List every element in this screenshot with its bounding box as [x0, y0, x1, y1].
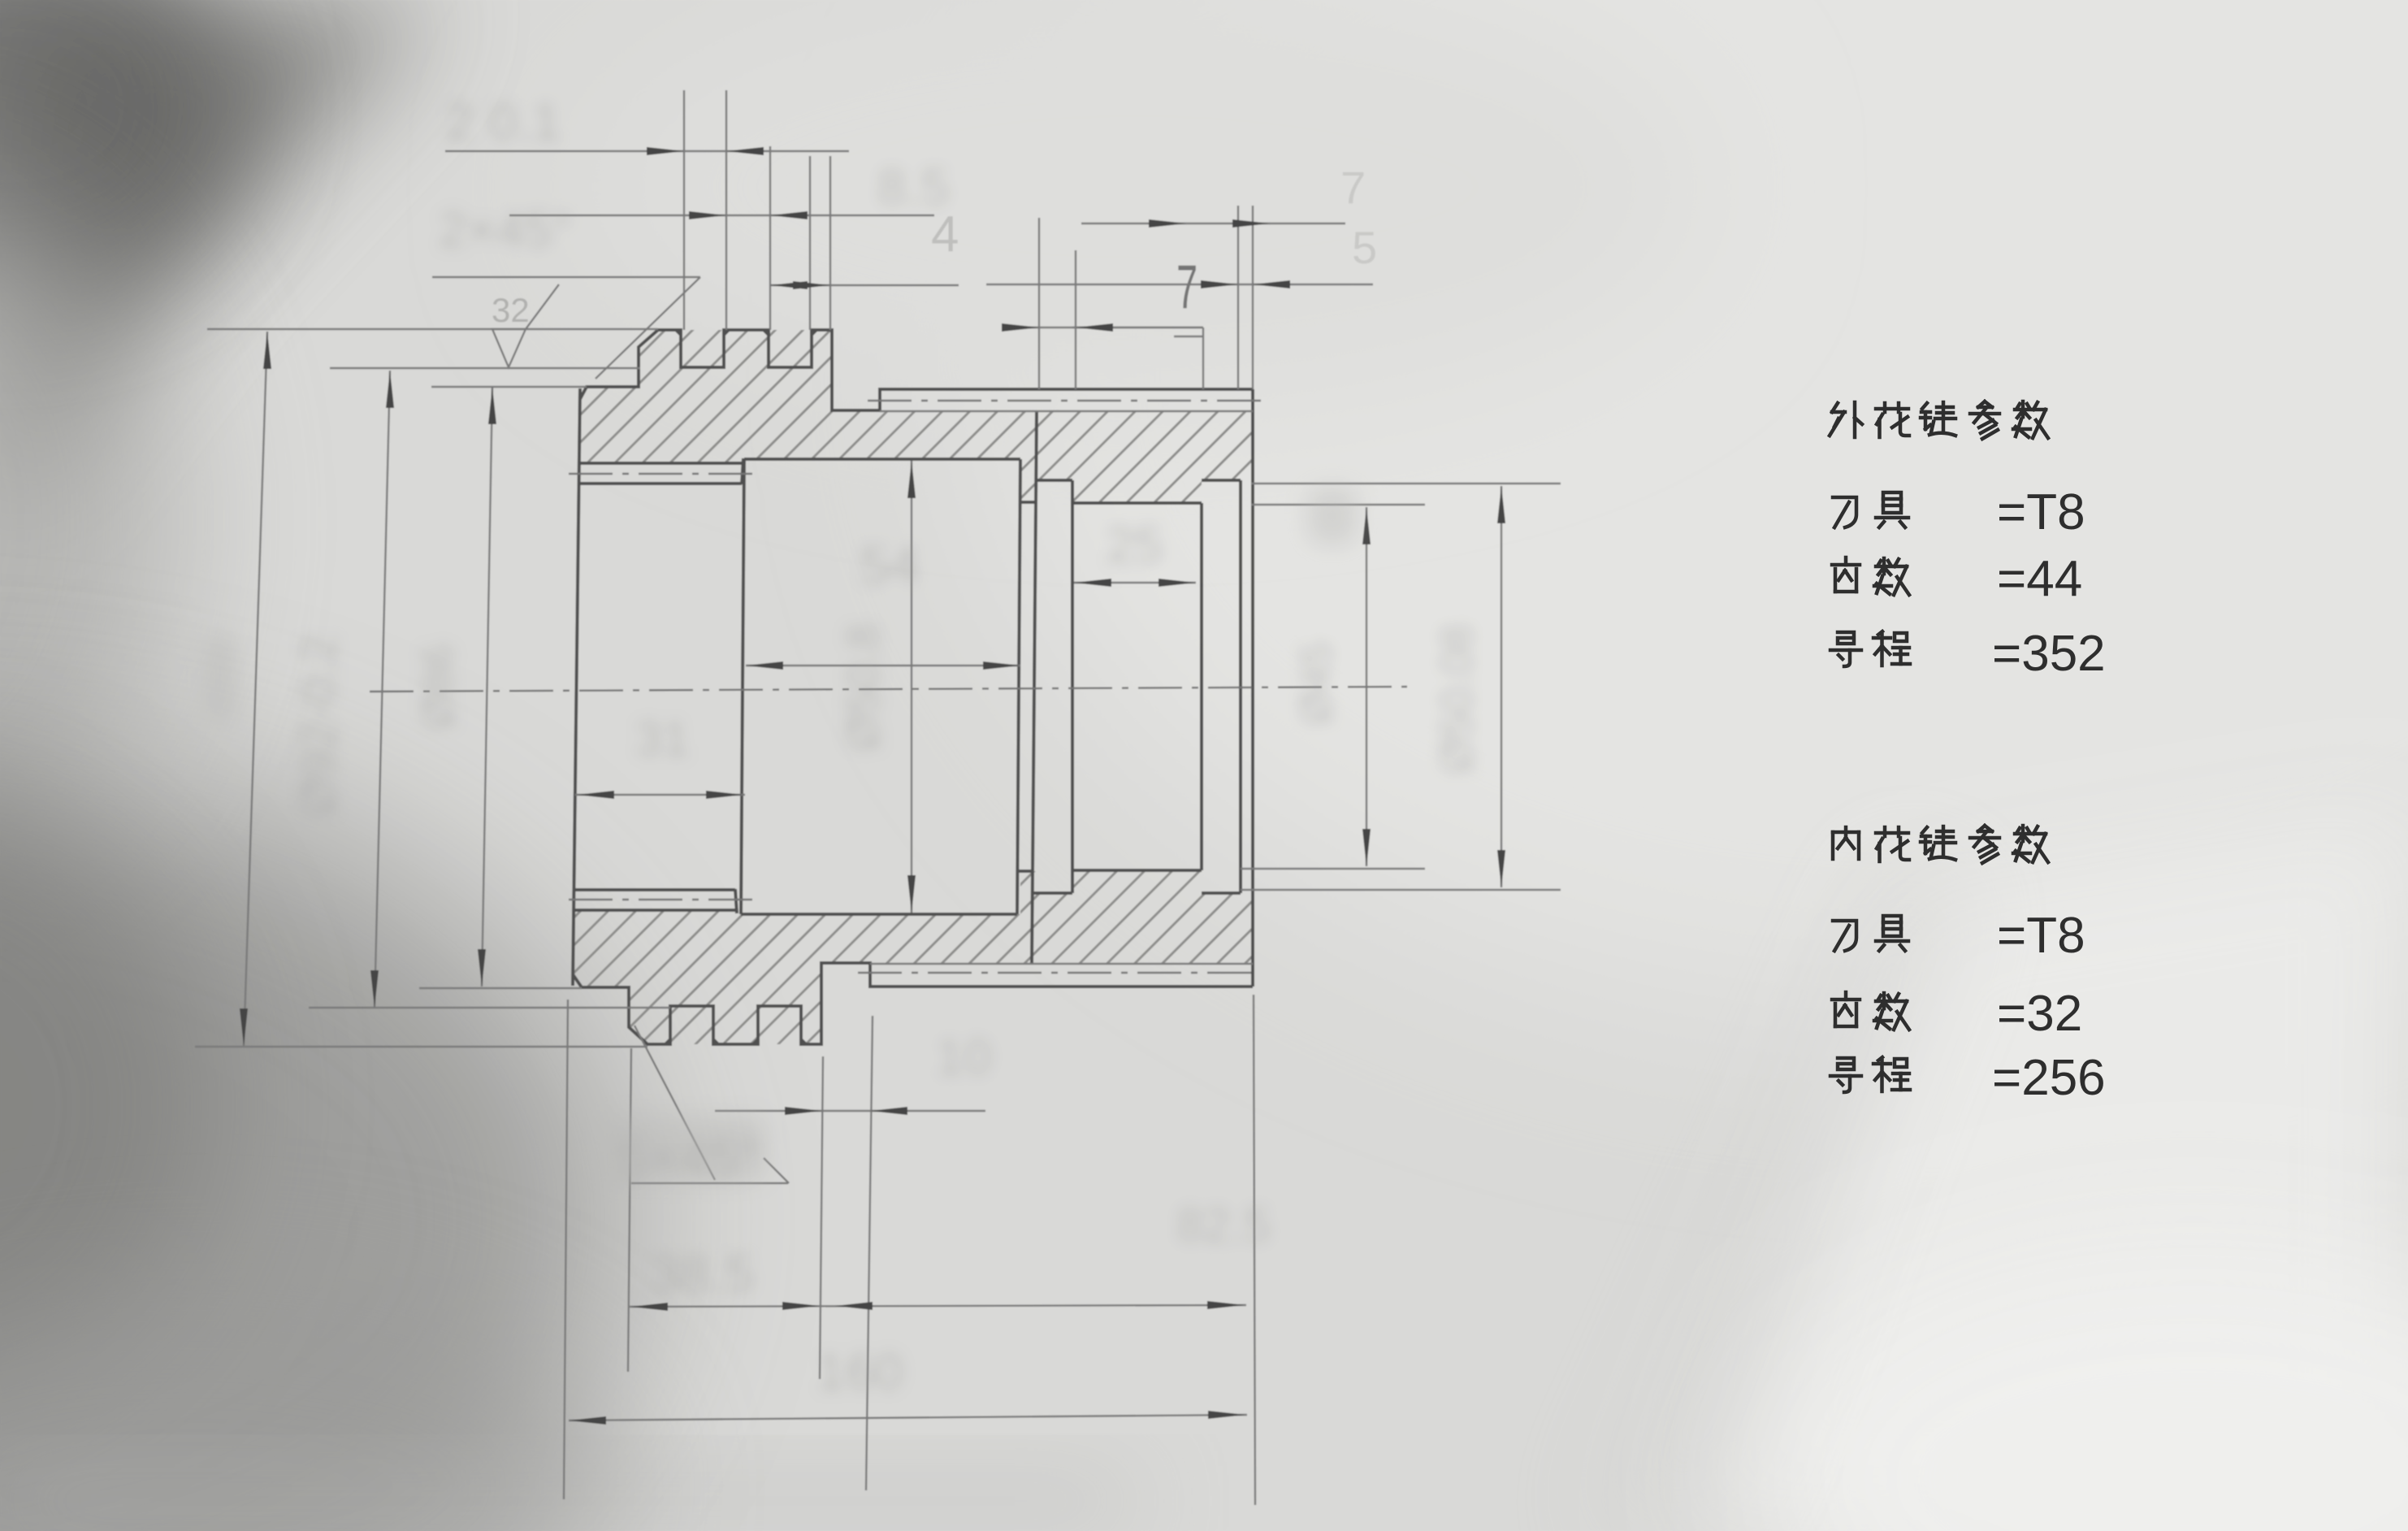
svg-text:Ø92-0.2: Ø92-0.2 — [291, 635, 347, 817]
svg-text:=T8: =T8 — [1997, 908, 2085, 964]
svg-text:=352: =352 — [1992, 626, 2106, 682]
svg-text:=32: =32 — [1997, 986, 2082, 1042]
svg-text:54: 54 — [860, 535, 919, 595]
svg-text:Ø50.08: Ø50.08 — [1431, 624, 1482, 774]
svg-text:7: 7 — [1176, 254, 1198, 322]
svg-text:2 0.1: 2 0.1 — [445, 93, 561, 151]
svg-text:32: 32 — [492, 291, 530, 329]
svg-text:Ø45: Ø45 — [1292, 642, 1340, 725]
svg-text:38.5: 38.5 — [650, 1243, 754, 1303]
svg-text:31: 31 — [635, 712, 690, 766]
svg-text:25: 25 — [1107, 518, 1163, 574]
svg-text:=44: =44 — [1997, 551, 2082, 607]
svg-text:=T8: =T8 — [1997, 484, 2085, 540]
svg-text:5: 5 — [1352, 222, 1377, 273]
svg-text:160: 160 — [816, 1342, 903, 1401]
svg-text:10: 10 — [936, 1030, 992, 1086]
svg-text:2×45°: 2×45° — [439, 202, 572, 258]
svg-text:Ø50.8: Ø50.8 — [837, 623, 890, 752]
svg-text:8.5: 8.5 — [877, 158, 950, 216]
svg-text:=256: =256 — [1992, 1050, 2106, 1106]
svg-text:Ø86: Ø86 — [412, 644, 463, 730]
svg-text:7: 7 — [1340, 162, 1366, 213]
svg-text:82.5: 82.5 — [1176, 1198, 1271, 1252]
